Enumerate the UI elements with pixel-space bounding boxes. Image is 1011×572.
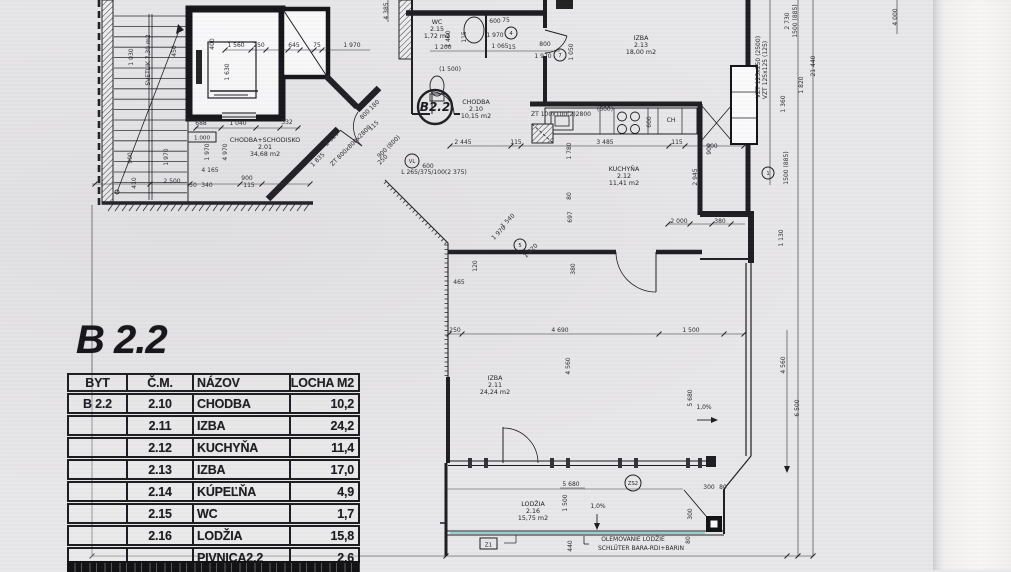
room-number-label: 2.16 [526, 508, 540, 515]
room-name-label: KUCHYŇA [609, 164, 640, 173]
dim-label: 2 500 [163, 178, 180, 185]
note-label: SCHLÜTER BARA-RDI+BARIN [598, 545, 684, 552]
dim-label: 4 560 [780, 356, 787, 373]
dim-label: 1 360 [780, 95, 787, 112]
dim-label: 4 000 [892, 8, 899, 25]
dim-label: 4 165 [201, 167, 218, 174]
dim-label: 1 500 [682, 327, 699, 334]
dim-label: 900 [127, 152, 134, 164]
table-cell: IZBA [194, 417, 291, 434]
room-name-label: IZBA [634, 35, 649, 42]
table-cell: LODŽIA [194, 527, 291, 544]
table-cell: 2.11 [128, 417, 194, 434]
note-label: SVETLIK 7,30 m2 [145, 34, 152, 85]
table-cell: KUCHYŇA [194, 439, 291, 456]
room-name-label: IZBA [488, 375, 503, 382]
table-cell: CHODBA [194, 395, 291, 412]
dim-label: 115 [243, 182, 255, 189]
reference-circle-label: ZS2 [628, 481, 638, 487]
dim-label: 2 445 [454, 139, 471, 146]
dim-label: 380 [570, 263, 577, 275]
room-area-label: 34,68 m2 [250, 151, 280, 158]
note-label: OLEMOVANIE LODŽIE [601, 535, 665, 543]
dim-label: (1 500) [439, 66, 461, 73]
dim-label: 340 [201, 182, 213, 189]
kitchen [530, 104, 702, 215]
reference-circle-label: 4 [509, 31, 513, 37]
note-label: L 265/375/100(2 375) [401, 169, 467, 176]
lodzia [440, 417, 724, 556]
table-cell: 4,9 [291, 483, 358, 500]
dim-label: 1 030 [128, 48, 135, 65]
dim-label: 1 970 [486, 32, 503, 39]
dim-label: 75 [313, 42, 321, 49]
table-cell: 2.15 [128, 505, 194, 522]
dim-label: 1 970 [343, 42, 360, 49]
dim-label: 4 690 [551, 327, 568, 334]
table-cell: 15,8 [291, 527, 358, 544]
dim-label: 300 [703, 484, 715, 491]
dim-label: 4 385 [383, 2, 390, 19]
table-cell: 24,2 [291, 417, 358, 434]
dim-label: 300 [687, 508, 694, 520]
dim-label: 410 [131, 177, 138, 189]
dim-label: 450 [171, 45, 178, 57]
table-header-cell: NÁZOV [194, 375, 291, 390]
dim-label: 900 [706, 143, 713, 155]
dim-label: 3 485 [596, 139, 613, 146]
table-row: 2.15WC1,7 [67, 503, 360, 524]
table-header-row: BYTČ.M.NÁZOVPLOCHA M2 [67, 373, 360, 392]
table-cell: WC [194, 505, 291, 522]
dim-label: (600) [597, 106, 613, 113]
dim-label: 440 [567, 540, 574, 552]
dim-label: 80 [566, 192, 573, 200]
table-cell [69, 417, 128, 434]
room-name-label: CHODBA+SCHODISKO [230, 137, 300, 144]
dim-label: 115 [461, 31, 468, 43]
note-label: 1,0% [590, 503, 606, 510]
dim-label: 1 500 [562, 494, 569, 511]
table-cell: 2.10 [128, 395, 194, 412]
dim-label: 800 [539, 41, 551, 48]
table-cell: 2.12 [128, 439, 194, 456]
dim-label: 600 [646, 116, 653, 128]
dim-label: 250 [253, 42, 265, 49]
dim-label: 600 [489, 18, 501, 25]
dim-label: 1 065 [491, 43, 508, 50]
table-cutoff-row [67, 561, 360, 572]
room-number-label: 2.13 [634, 42, 648, 49]
dim-label: 75 [502, 17, 510, 24]
dim-label: 120 [472, 260, 479, 272]
table-header-cell: Č.M. [128, 375, 194, 390]
dim-label: 115 [671, 139, 683, 146]
dim-label: 21 440 [810, 55, 817, 76]
dim-label: 2 000 [670, 218, 687, 225]
table-header-cell: PLOCHA M2 [291, 375, 358, 390]
table-row: 2.16LODŽIA15,8 [67, 525, 360, 546]
room-area-label: 10,15 m2 [461, 113, 491, 120]
dim-label: 50 [189, 182, 197, 189]
dim-label: 900 (800) [376, 134, 402, 160]
reference-circle-label: VL [409, 159, 416, 165]
table-row: 2.14KÚPEĽŇA4,9 [67, 481, 360, 502]
dim-label: 80 [685, 536, 692, 544]
dim-label: 15 [508, 44, 516, 51]
room-number-label: 2.11 [488, 382, 502, 389]
dim-label: 1 970 [163, 148, 170, 165]
dim-label: 465 [453, 279, 465, 286]
dim-label: 5 680 [687, 389, 694, 406]
dim-label: 1 130 [778, 229, 785, 246]
dim-label: 1500 (885) [783, 151, 790, 184]
dim-label: 1 780 [566, 142, 573, 159]
note-label: CH [667, 117, 676, 124]
table-cell [69, 527, 128, 544]
table-cell: 2.14 [128, 483, 194, 500]
table-cell: 2.16 [128, 527, 194, 544]
room-number-label: 2.10 [469, 106, 483, 113]
entrance-diagonal-wall [268, 88, 448, 377]
table-cell: 1,7 [291, 505, 358, 522]
room-area-label: 1,72 m2 [424, 33, 450, 40]
dim-label: 1500 (885) [792, 4, 799, 37]
room-number-label: 2.15 [430, 26, 444, 33]
room-area-label: 18,00 m2 [626, 49, 656, 56]
table-cell [69, 483, 128, 500]
unit-title: B 2.2 [76, 318, 167, 363]
dim-label: 697 [567, 211, 574, 223]
scanned-floor-plan-page: { "title": { "label": "B 2.2" }, "table"… [0, 0, 1011, 570]
table-cell: 11,4 [291, 439, 358, 456]
dim-label: 4 970 [222, 143, 229, 160]
dim-label: 1 560 [227, 42, 244, 49]
room-izba-211 [448, 252, 716, 468]
reference-box-label: 1.000 [194, 136, 210, 142]
dim-label: 332 [281, 119, 293, 126]
dim-label: 688 [195, 120, 207, 127]
dim-label: 4 560 [565, 357, 572, 374]
room-name-label: LODŽIA [521, 499, 545, 508]
table-cell: 10,2 [291, 395, 358, 412]
dim-label: 1 630 [224, 63, 231, 80]
dim-label: 6 500 [794, 399, 801, 416]
dim-label: 2 730 [784, 12, 791, 29]
reference-circle-label: 1 [766, 171, 769, 177]
dim-label: 80 [719, 484, 727, 491]
dim-label: 900 [241, 175, 253, 182]
table-row: 2.13IZBA17,0 [67, 459, 360, 480]
dim-label: 645 [288, 42, 300, 49]
dim-label: 380 [714, 218, 726, 225]
dim-label: 1 970 [204, 143, 211, 160]
room-area-table: BYTČ.M.NÁZOVPLOCHA M2 B 2.22.10CHODBA10,… [67, 373, 360, 569]
reference-box-label: Z1 [485, 543, 493, 549]
room-area-label: 24,24 m2 [480, 389, 510, 396]
reference-circle-label: B2.2 [420, 100, 450, 114]
note-label: VZT 125x125 (125) [762, 41, 769, 99]
table-row: 2.12KUCHYŇA11,4 [67, 437, 360, 458]
room-area-label: 11,41 m2 [609, 180, 639, 187]
table-cell: 17,0 [291, 461, 358, 478]
table-cell [69, 505, 128, 522]
note-label: ZT 100x100(2)2800 [531, 111, 591, 118]
table-cell: IZBA [194, 461, 291, 478]
table-row: B 2.22.10CHODBA10,2 [67, 393, 360, 414]
dim-label: 400 [209, 38, 216, 50]
note-label: VZT 125x250 (2500) [755, 36, 762, 98]
note-label: 1,0% [696, 404, 712, 411]
table-row: 2.11IZBA24,2 [67, 415, 360, 436]
room-name-label: WC [432, 19, 443, 26]
table-cell: KÚPEĽŇA [194, 483, 291, 500]
table-cell: 2.13 [128, 461, 194, 478]
table-cell [69, 439, 128, 456]
table-cell: B 2.2 [69, 395, 128, 412]
reference-circle-label: 7 [558, 53, 561, 59]
room-area-label: 15,75 m2 [518, 515, 548, 522]
dim-label: 5 680 [562, 481, 579, 488]
dim-label: 115 [510, 139, 522, 146]
dim-label: 1 820 [798, 76, 805, 93]
room-number-label: 2.01 [258, 144, 272, 151]
dim-label: 250 [449, 327, 461, 334]
table-header-cell: BYT [69, 375, 128, 390]
dim-label: 1 200 [434, 44, 451, 51]
dim-label: 1 040 [229, 120, 246, 127]
dim-label: 2 945 [692, 168, 699, 185]
table-cell [69, 461, 128, 478]
dim-label: 1 970 [534, 53, 551, 60]
room-name-label: CHODBA [462, 99, 490, 106]
room-number-label: 2.12 [617, 173, 631, 180]
dim-label: 1 050 [568, 43, 575, 60]
reference-circle-label: 5 [518, 243, 521, 249]
